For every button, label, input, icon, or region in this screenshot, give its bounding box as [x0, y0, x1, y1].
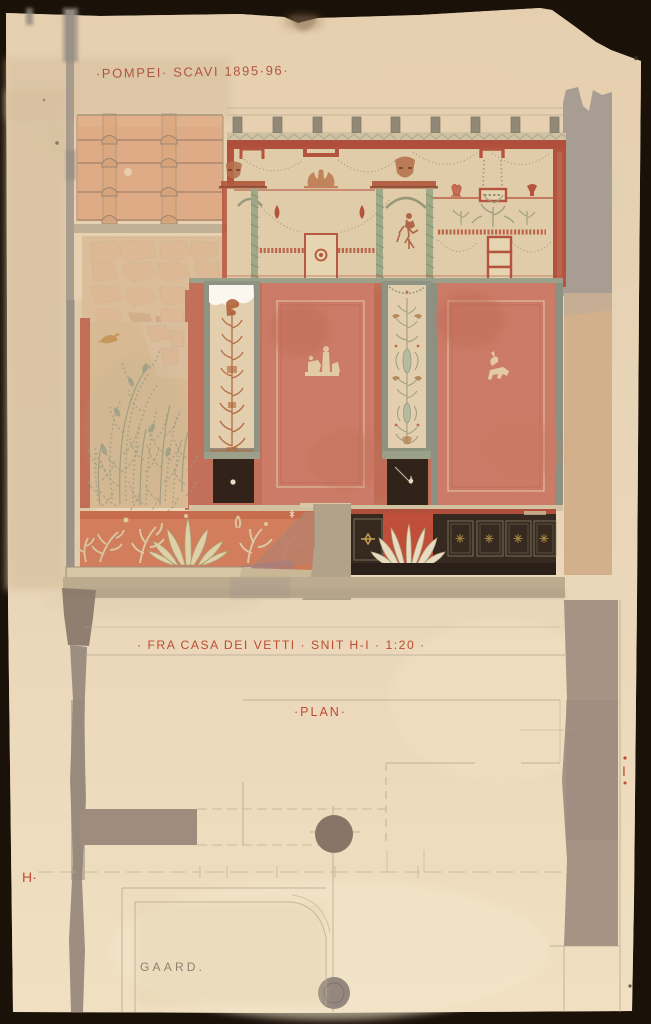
svg-text:· FRA CASA DEI VETTI · SNIT H-: · FRA CASA DEI VETTI · SNIT H-I · 1:20 ·	[137, 638, 426, 652]
svg-text:·PLAN·: ·PLAN·	[294, 705, 347, 719]
svg-text:H·: H·	[22, 869, 37, 885]
svg-text:I: I	[622, 763, 626, 779]
svg-text:GAARD.: GAARD.	[140, 960, 205, 974]
